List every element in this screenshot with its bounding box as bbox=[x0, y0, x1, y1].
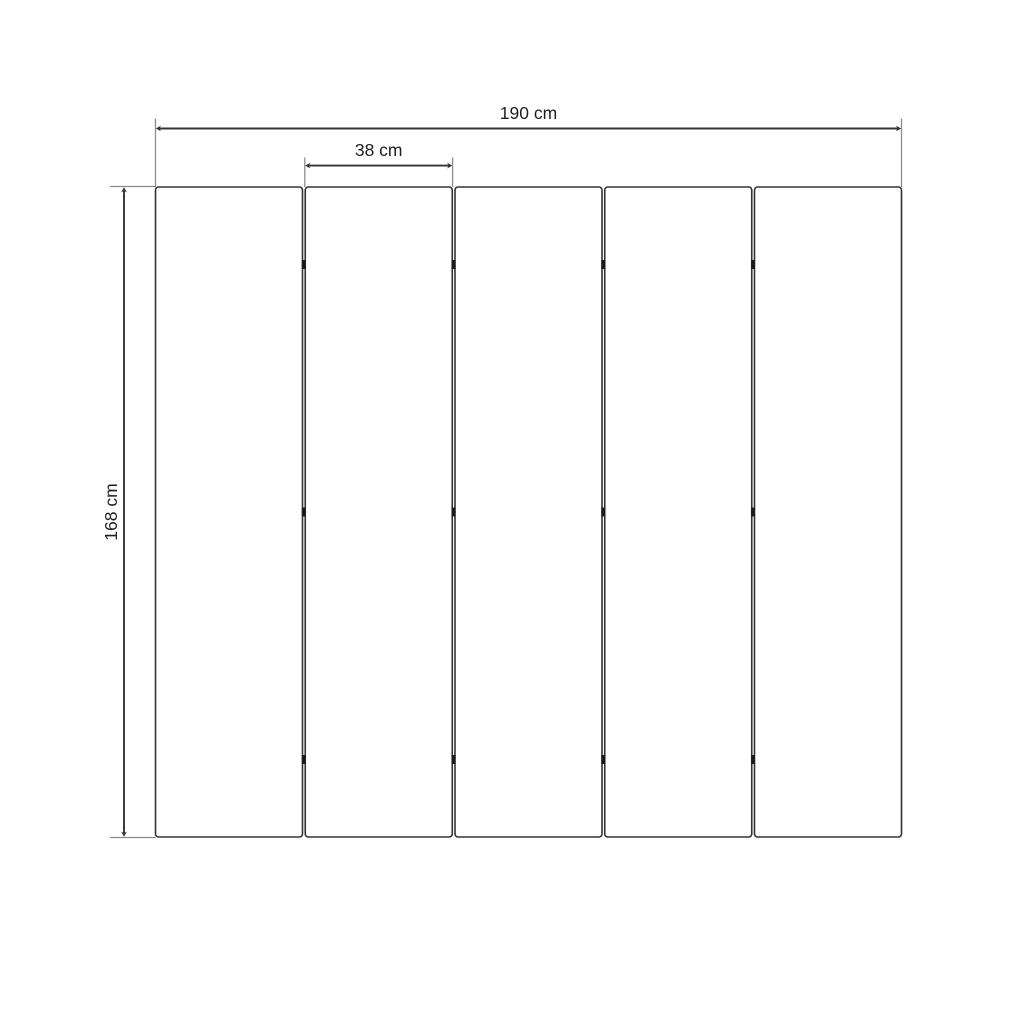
svg-text:38 cm: 38 cm bbox=[355, 140, 403, 160]
svg-text:168 cm: 168 cm bbox=[101, 483, 121, 540]
svg-text:190 cm: 190 cm bbox=[500, 103, 557, 123]
